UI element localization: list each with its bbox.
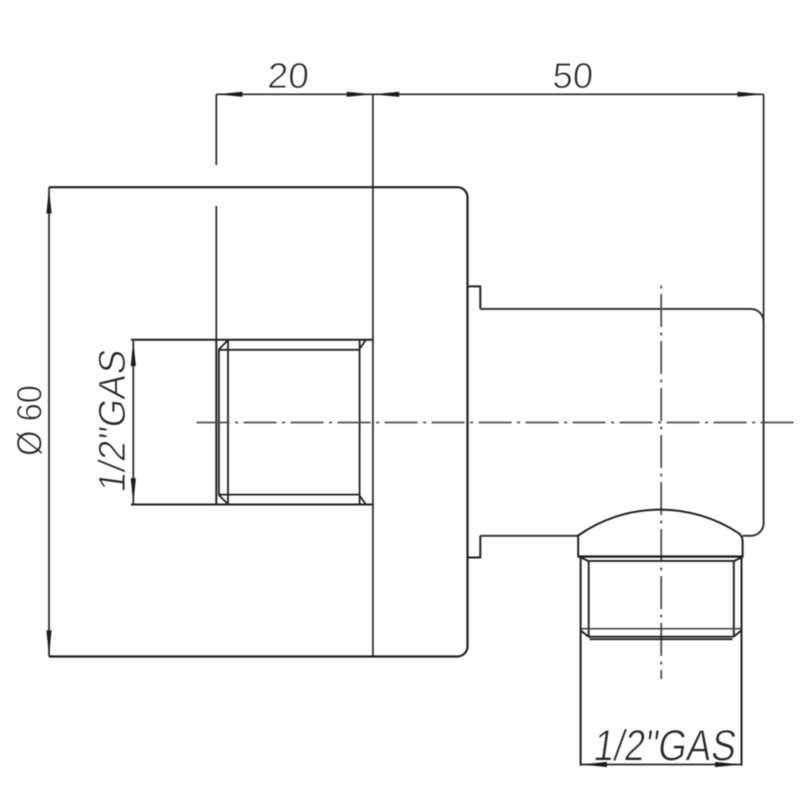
svg-text:50: 50 (552, 55, 595, 96)
svg-text:20: 20 (266, 55, 310, 96)
svg-text:1/2"GAS: 1/2"GAS (591, 722, 740, 771)
svg-text:Ø 60: Ø 60 (11, 385, 50, 456)
svg-text:1/2"GAS: 1/2"GAS (91, 346, 134, 495)
